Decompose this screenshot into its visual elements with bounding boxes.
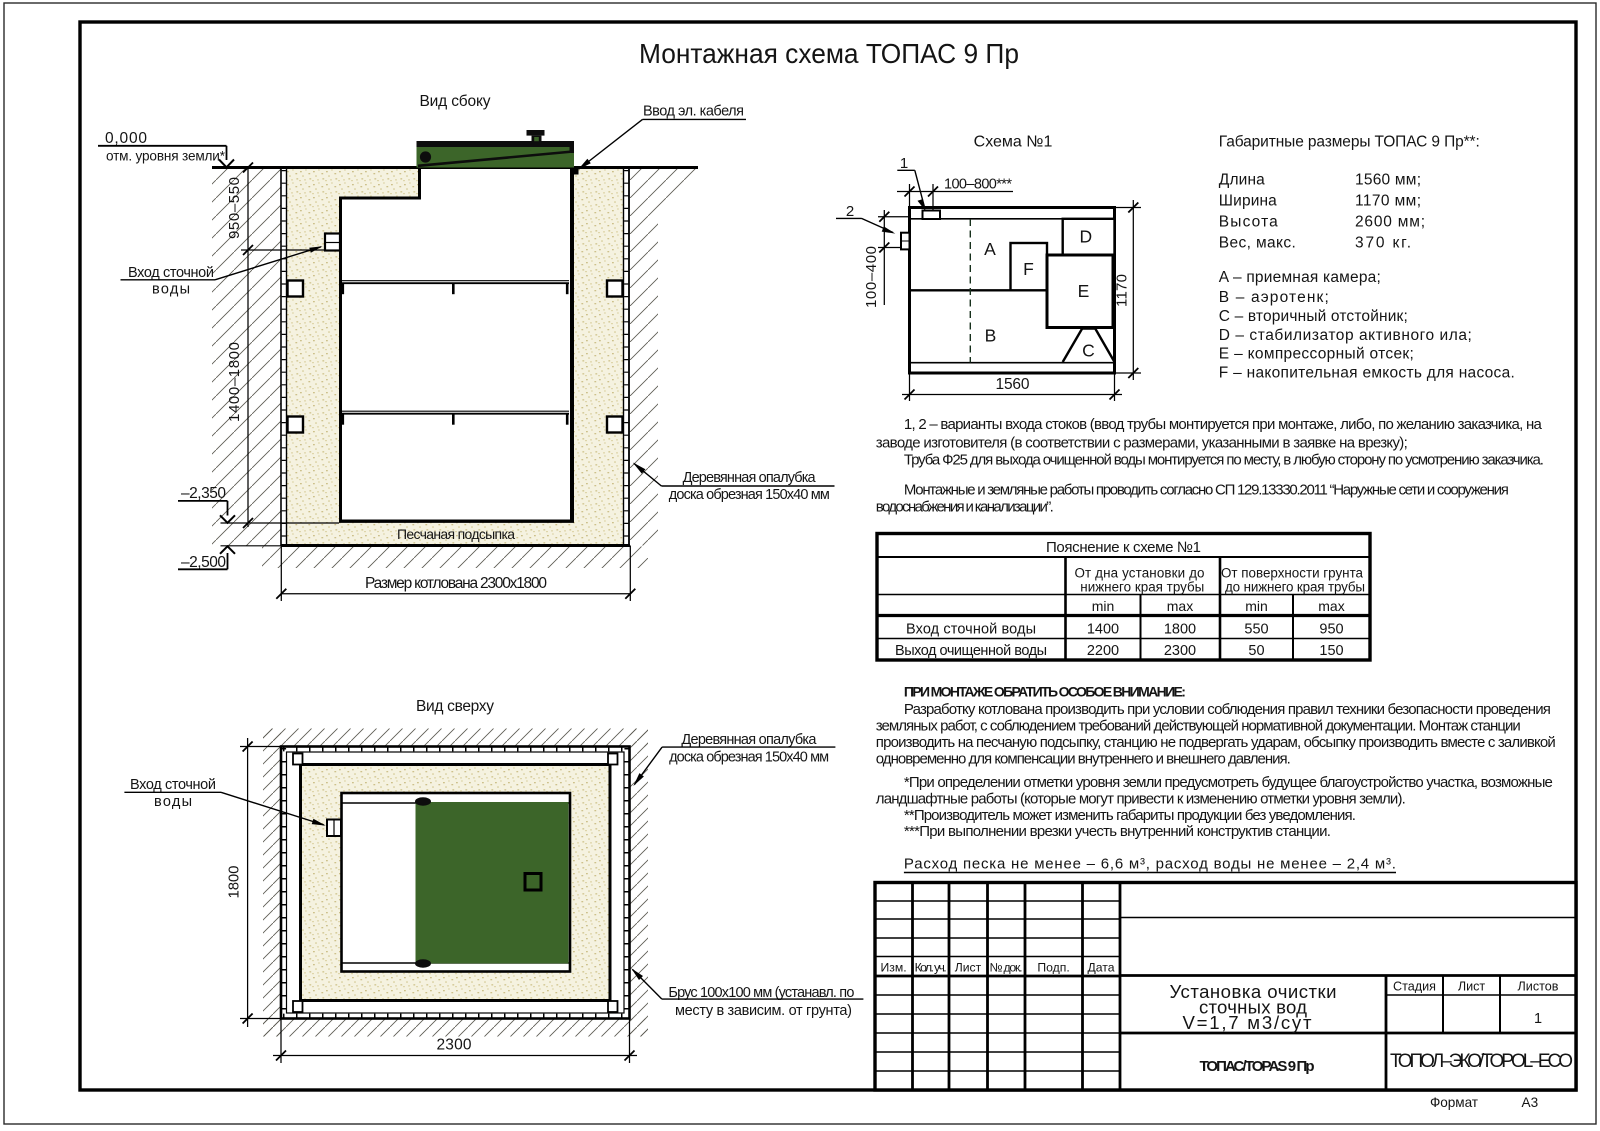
svg-text:1400–1800: 1400–1800	[226, 342, 243, 422]
svg-text:E – компрессорный отсек;: E – компрессорный отсек;	[1219, 346, 1414, 363]
svg-text:земляных работ, с соблюдением: земляных работ, с соблюдением требований…	[876, 718, 1521, 735]
svg-text:B: B	[985, 326, 997, 346]
svg-text:ПРИ МОНТАЖЕ ОБРАТИТЬ ОСОБОЕ ВН: ПРИ МОНТАЖЕ ОБРАТИТЬ ОСОБОЕ ВНИМАНИЕ:	[904, 684, 1186, 700]
svg-text:C – вторичный отстойник;: C – вторичный отстойник;	[1219, 308, 1408, 325]
svg-text:1170 мм;: 1170 мм;	[1355, 193, 1421, 210]
svg-text:Разработку котлована производи: Разработку котлована производить при усл…	[904, 701, 1551, 718]
svg-text:Длина: Длина	[1219, 172, 1265, 189]
svg-text:ТОПАС/TOPAS 9 Пр: ТОПАС/TOPAS 9 Пр	[1200, 1058, 1315, 1075]
svg-text:1560: 1560	[996, 376, 1030, 393]
svg-text:Труба Ф25 для выхода очищенной: Труба Ф25 для выхода очищенной воды монт…	[904, 452, 1544, 469]
svg-text:Изм.: Изм.	[881, 961, 907, 975]
svg-text:F – накопительная емкость для: F – накопительная емкость для насоса.	[1219, 365, 1515, 382]
svg-text:1800: 1800	[226, 866, 243, 899]
svg-text:Лист: Лист	[955, 961, 982, 975]
svg-text:550: 550	[1244, 622, 1268, 638]
svg-text:Схема №1: Схема №1	[974, 134, 1053, 151]
svg-text:B – аэротенк;: B – аэротенк;	[1219, 289, 1329, 306]
svg-text:1170: 1170	[1114, 274, 1131, 307]
svg-text:Выход очищенной воды: Выход очищенной воды	[895, 643, 1047, 659]
svg-text:воды: воды	[154, 794, 192, 810]
svg-text:Вес, макс.: Вес, макс.	[1219, 235, 1296, 252]
svg-text:Вход сточной: Вход сточной	[128, 265, 214, 281]
svg-text:100–400: 100–400	[863, 246, 880, 308]
svg-text:950–550: 950–550	[226, 177, 243, 239]
svg-text:до нижнего края трубы: до нижнего края трубы	[1225, 580, 1365, 595]
svg-text:Ширина: Ширина	[1219, 193, 1277, 210]
svg-text:Вид сверху: Вид сверху	[416, 698, 494, 715]
svg-text:max: max	[1318, 598, 1344, 614]
svg-text:Монтажная схема ТОПАС 9 Пр: Монтажная схема ТОПАС 9 Пр	[639, 38, 1019, 69]
svg-text:Лист: Лист	[1458, 980, 1486, 994]
svg-text:Дата: Дата	[1088, 961, 1115, 975]
svg-text:От дна установки до: От дна установки до	[1075, 566, 1205, 581]
svg-text:отм. уровня земли*: отм. уровня земли*	[106, 149, 226, 164]
svg-text:1560 мм;: 1560 мм;	[1355, 172, 1421, 189]
svg-text:Вход сточной воды: Вход сточной воды	[906, 622, 1036, 638]
svg-text:ТОПОЛ–ЭКО/TOPOL–ECO: ТОПОЛ–ЭКО/TOPOL–ECO	[1390, 1051, 1573, 1072]
svg-text:№ док.: № док.	[990, 961, 1023, 975]
svg-text:**Производитель может изменить: **Производитель может изменить габариты …	[904, 807, 1356, 824]
svg-text:Вход сточной: Вход сточной	[130, 777, 216, 793]
svg-text:Высота: Высота	[1219, 214, 1278, 231]
svg-text:V=1,7 м3/сут: V=1,7 м3/сут	[1183, 1012, 1312, 1033]
svg-text:Монтажные и земляные работы пр: Монтажные и земляные работы проводить со…	[904, 482, 1509, 499]
svg-text:Песчаная подсыпка: Песчаная подсыпка	[397, 526, 515, 542]
svg-text:От поверхности грунта: От поверхности грунта	[1221, 566, 1364, 581]
svg-text:Размер котлована 2300х1800: Размер котлована 2300х1800	[365, 575, 547, 592]
svg-text:Деревянная опалубка: Деревянная опалубка	[683, 470, 817, 486]
svg-text:воды: воды	[152, 282, 190, 298]
svg-text:950: 950	[1319, 622, 1343, 638]
svg-text:Подп.: Подп.	[1037, 961, 1069, 975]
svg-text:А3: А3	[1522, 1095, 1539, 1110]
svg-text:водоснабжения и канализации”.: водоснабжения и канализации”.	[876, 499, 1054, 516]
svg-text:Стадия: Стадия	[1393, 980, 1436, 994]
svg-text:Ввод эл. кабеля: Ввод эл. кабеля	[643, 104, 744, 120]
svg-text:1, 2 – варианты входа стоков: 1, 2 – варианты входа стоков (ввод трубы…	[904, 416, 1543, 433]
svg-text:доска обрезная 150х40 мм: доска обрезная 150х40 мм	[669, 487, 830, 503]
svg-text:месту в зависим. от грунта): месту в зависим. от грунта)	[675, 1003, 852, 1019]
svg-text:доска обрезная 150х40 мм: доска обрезная 150х40 мм	[669, 750, 829, 766]
svg-text:Вид сбоку: Вид сбоку	[420, 93, 491, 110]
svg-text:min: min	[1092, 598, 1115, 614]
svg-text:Деревянная опалубка: Деревянная опалубка	[681, 732, 817, 748]
svg-text:заводе изготовителя (в соответ: заводе изготовителя (в соответствии с ра…	[876, 435, 1408, 452]
svg-text:Листов: Листов	[1518, 980, 1559, 994]
svg-text:50: 50	[1248, 643, 1264, 659]
svg-text:–2,350: –2,350	[181, 485, 226, 502]
svg-text:min: min	[1245, 598, 1268, 614]
svg-text:D: D	[1079, 227, 1092, 247]
svg-text:2300: 2300	[437, 1037, 472, 1054]
svg-text:нижнего края трубы: нижнего края трубы	[1080, 580, 1204, 595]
svg-text:производить на песчаную подсып: производить на песчаную подсыпку, станци…	[876, 734, 1556, 751]
svg-text:Формат: Формат	[1430, 1095, 1478, 1110]
svg-text:150: 150	[1319, 643, 1343, 659]
svg-text:2600 мм;: 2600 мм;	[1355, 214, 1425, 231]
svg-text:одновременно для компенсации в: одновременно для компенсации внутреннего…	[876, 751, 1291, 768]
svg-text:1: 1	[900, 155, 908, 172]
svg-text:D – стабилизатор активного ила: D – стабилизатор активного ила;	[1219, 327, 1472, 344]
svg-text:A – приемная камера;: A – приемная камера;	[1219, 269, 1381, 286]
svg-text:E: E	[1078, 281, 1090, 301]
svg-text:370 кг.: 370 кг.	[1355, 235, 1411, 252]
svg-text:100–800***: 100–800***	[944, 177, 1012, 193]
svg-text:A: A	[984, 239, 996, 259]
svg-text:C: C	[1082, 341, 1095, 361]
svg-text:1: 1	[1534, 1011, 1542, 1027]
svg-text:2200: 2200	[1087, 643, 1119, 659]
svg-text:*При определении отметки уровн: *При определении отметки уровня земли пр…	[904, 774, 1553, 791]
svg-text:***При выполнении врезки учест: ***При выполнении врезки учесть внутренн…	[904, 823, 1331, 840]
svg-text:ландшафтные работы (которые мо: ландшафтные работы (которые могут привес…	[876, 791, 1406, 808]
svg-text:F: F	[1023, 259, 1034, 279]
svg-text:Пояснение к схеме №1: Пояснение к схеме №1	[1046, 539, 1201, 556]
svg-text:Расход песка не менее – 6,6 м³: Расход песка не менее – 6,6 м³, расход в…	[904, 856, 1396, 873]
svg-text:2300: 2300	[1164, 643, 1196, 659]
svg-text:1800: 1800	[1164, 622, 1196, 638]
svg-text:Габаритные размеры ТОПАС 9 Пр*: Габаритные размеры ТОПАС 9 Пр**:	[1219, 134, 1480, 151]
svg-text:Кол. уч.: Кол. уч.	[915, 961, 947, 975]
svg-text:0,000: 0,000	[105, 130, 147, 147]
svg-text:max: max	[1167, 598, 1193, 614]
svg-text:1400: 1400	[1087, 622, 1119, 638]
svg-text:2: 2	[846, 203, 854, 220]
